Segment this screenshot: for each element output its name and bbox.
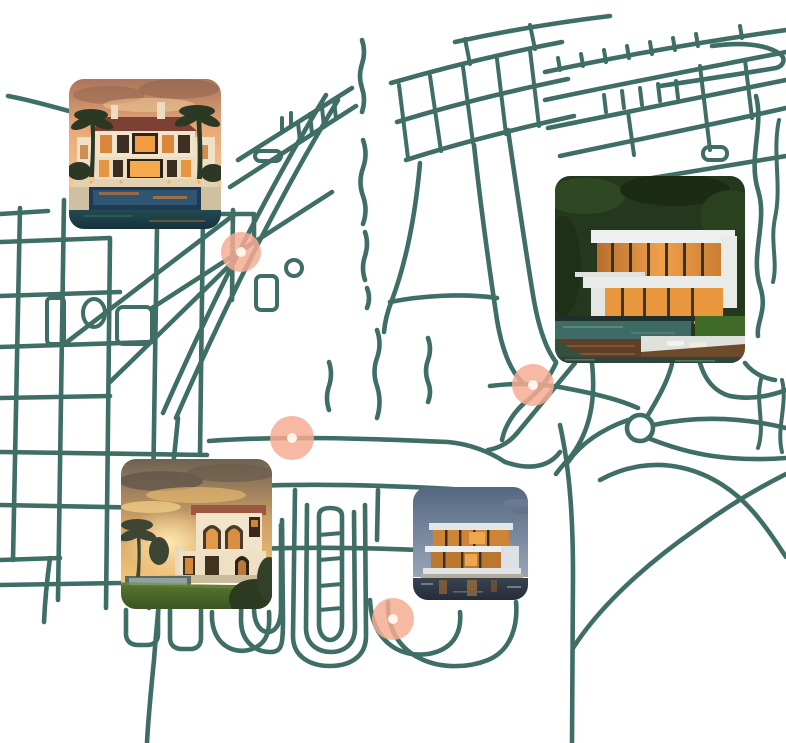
map-marker-south[interactable] <box>372 598 414 640</box>
marker-dot <box>388 614 398 624</box>
map-marker-east[interactable] <box>512 364 554 406</box>
property-photo-modern-glass-villa[interactable] <box>555 176 745 363</box>
map-canvas <box>0 0 786 743</box>
map-marker-west[interactable] <box>270 416 314 460</box>
photo-illustration <box>121 459 272 609</box>
marker-dot <box>528 380 538 390</box>
property-photo-spanish-villa[interactable] <box>121 459 272 609</box>
marker-dot <box>287 433 297 443</box>
photo-illustration <box>413 487 528 600</box>
property-photo-contemporary-villa[interactable] <box>413 487 528 600</box>
property-photo-mediterranean-estate[interactable] <box>69 79 221 229</box>
photo-illustration <box>555 176 745 363</box>
photo-illustration <box>69 79 221 229</box>
map-marker-northwest[interactable] <box>221 232 261 272</box>
marker-dot <box>236 247 246 257</box>
